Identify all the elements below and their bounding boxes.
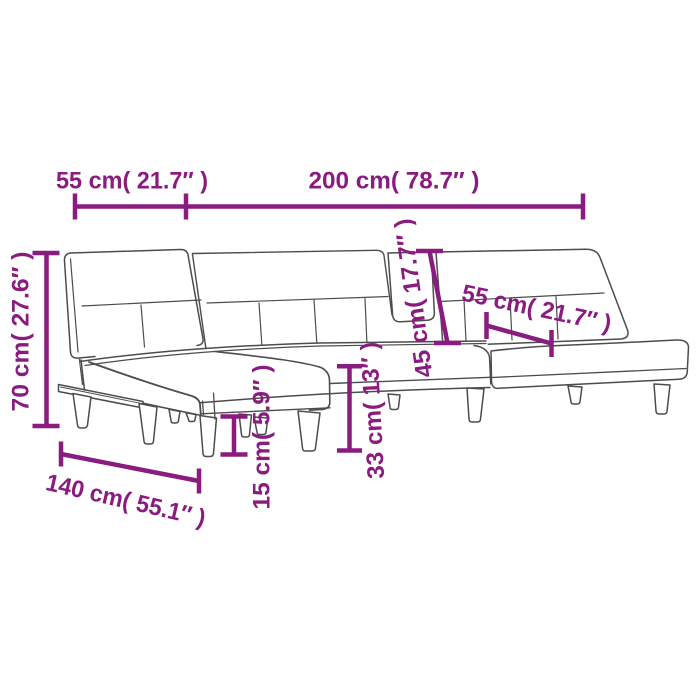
svg-text:200 cm( 78.7″ ): 200 cm( 78.7″ ) <box>309 168 480 195</box>
svg-text:55 cm( 21.7″ ): 55 cm( 21.7″ ) <box>56 168 208 195</box>
svg-text:15 cm( 5.9″ ): 15 cm( 5.9″ ) <box>249 365 276 510</box>
svg-text:70 cm( 27.6″ ): 70 cm( 27.6″ ) <box>8 252 35 412</box>
